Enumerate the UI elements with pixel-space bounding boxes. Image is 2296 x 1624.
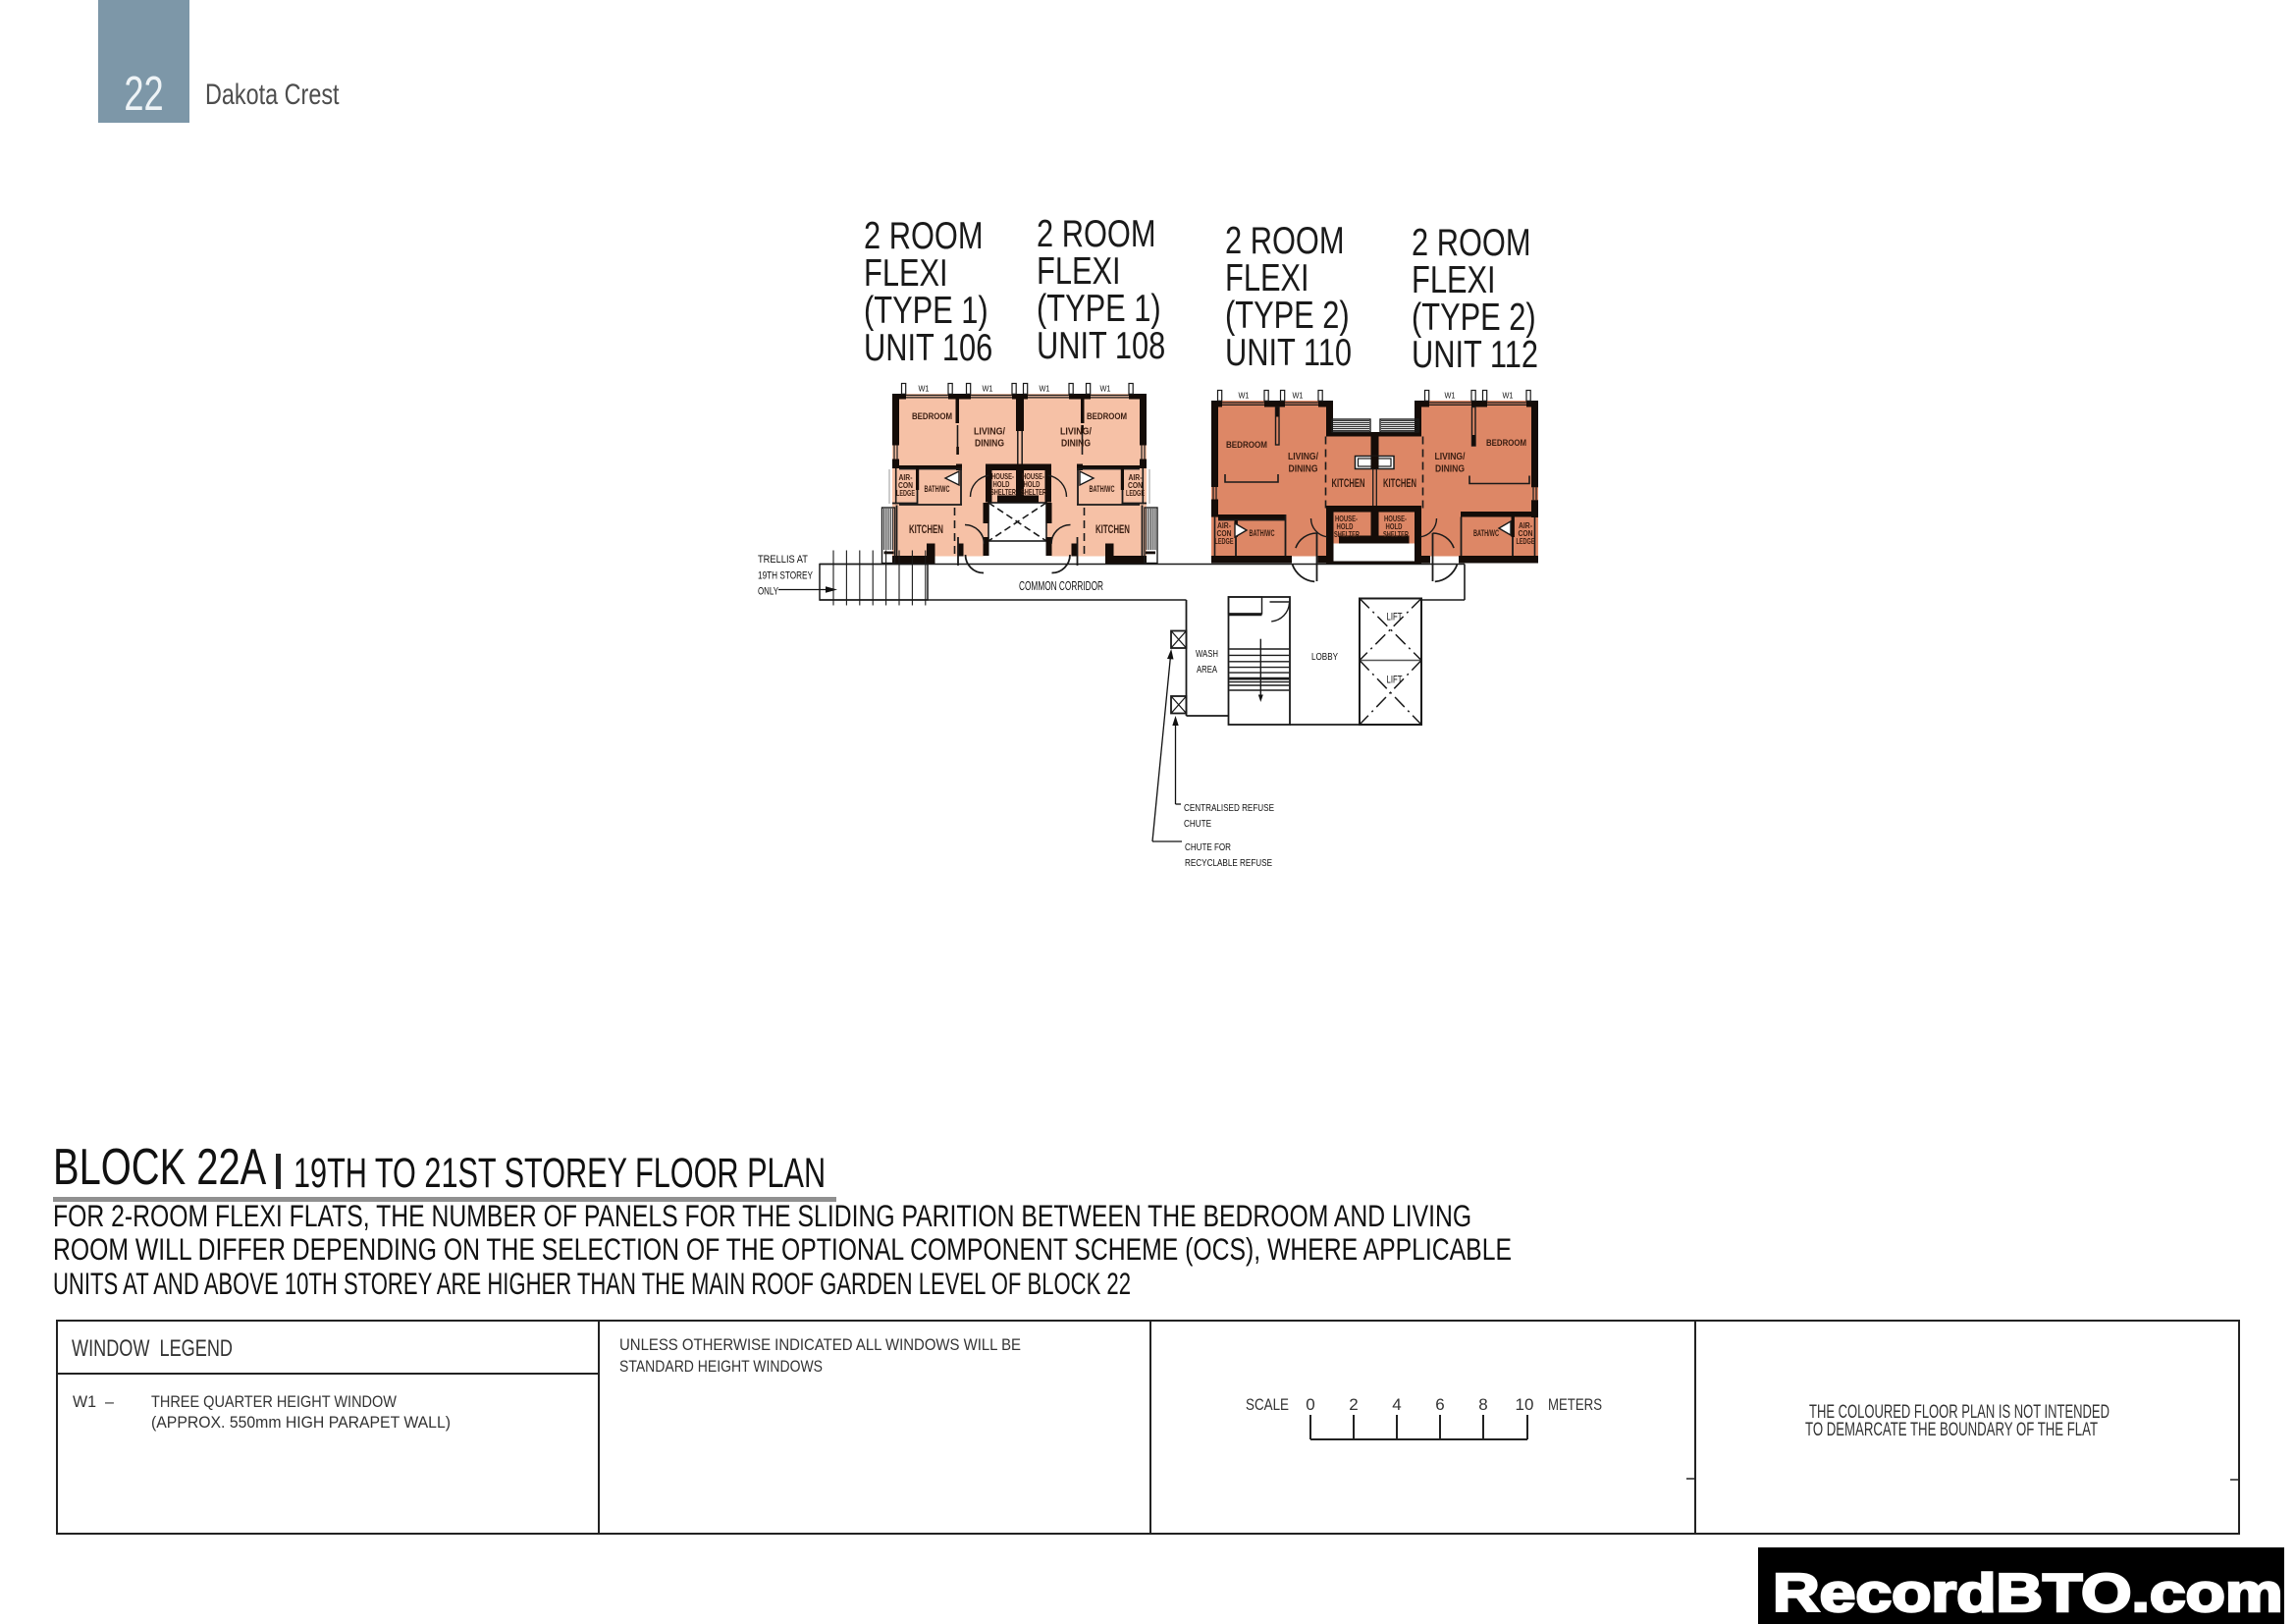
svg-text:TO DEMARCATE THE BOUNDARY OF T: TO DEMARCATE THE BOUNDARY OF THE FLAT xyxy=(1805,1420,2098,1440)
svg-text:SCALE: SCALE xyxy=(1246,1395,1289,1414)
svg-text:8: 8 xyxy=(1478,1395,1487,1414)
svg-text:UNLESS OTHERWISE INDICATED ALL: UNLESS OTHERWISE INDICATED ALL WINDOWS W… xyxy=(619,1335,1021,1354)
svg-text:WINDOW LEGEND: WINDOW LEGEND xyxy=(72,1335,233,1362)
svg-text:10: 10 xyxy=(1516,1395,1534,1414)
svg-text:4: 4 xyxy=(1392,1395,1401,1414)
svg-text:(APPROX. 550mm HIGH PARAPET WA: (APPROX. 550mm HIGH PARAPET WALL) xyxy=(151,1413,451,1432)
svg-text:STANDARD HEIGHT WINDOWS: STANDARD HEIGHT WINDOWS xyxy=(619,1357,823,1376)
svg-text:W1 –: W1 – xyxy=(73,1392,115,1411)
svg-text:THREE QUARTER HEIGHT WINDOW: THREE QUARTER HEIGHT WINDOW xyxy=(151,1392,397,1411)
svg-text:METERS: METERS xyxy=(1548,1395,1602,1414)
svg-text:6: 6 xyxy=(1435,1395,1444,1414)
svg-text:2: 2 xyxy=(1349,1395,1358,1414)
svg-text:0: 0 xyxy=(1306,1395,1314,1414)
